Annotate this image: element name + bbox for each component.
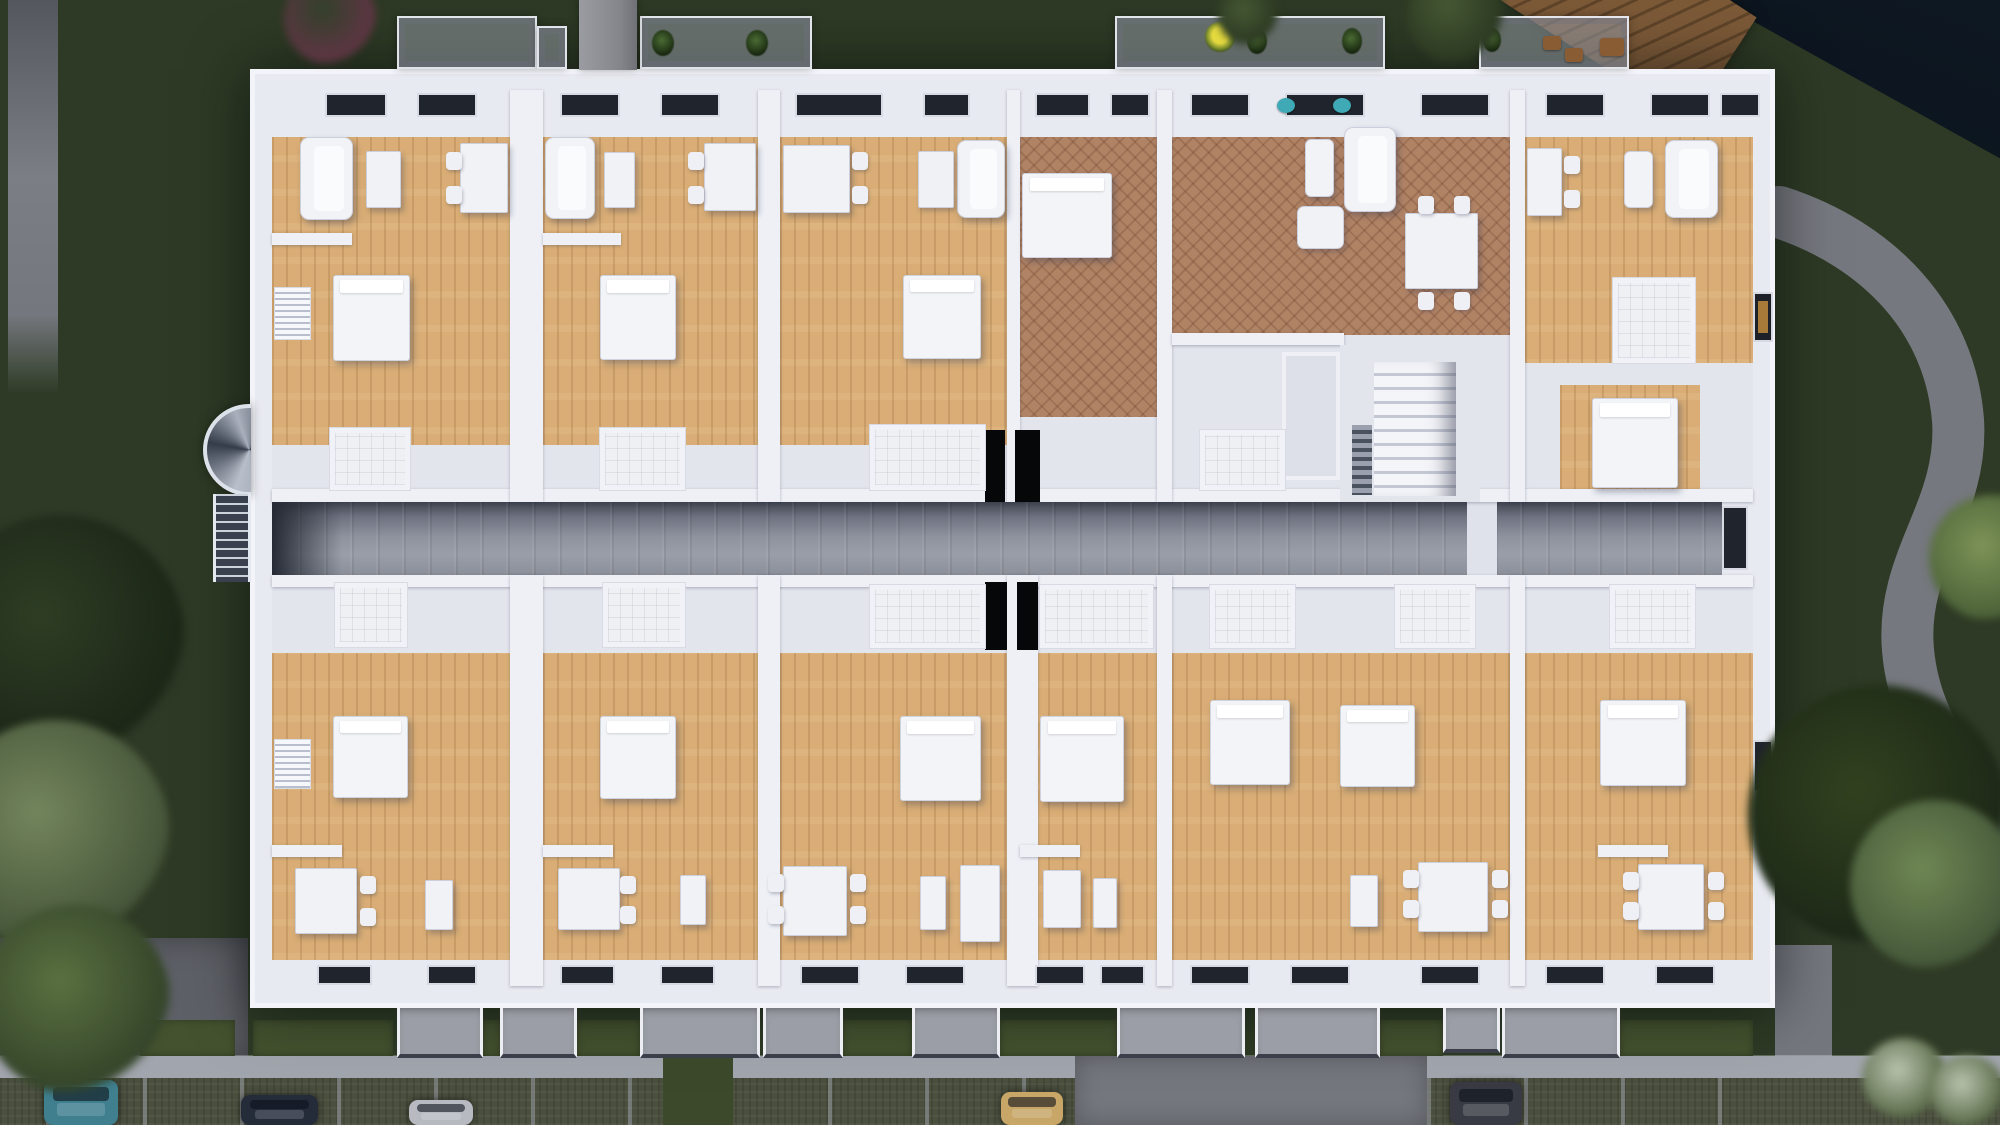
coffee-table (366, 151, 401, 208)
loggia-chair-teal (1333, 98, 1351, 113)
grass-patch (1620, 1020, 1753, 1056)
chair (852, 186, 868, 204)
bathroom (870, 425, 985, 490)
shaft-void (1015, 430, 1040, 502)
dining-table (783, 145, 850, 213)
side-table (1350, 875, 1378, 927)
potted-cypress (1342, 28, 1362, 54)
chair (688, 152, 704, 170)
grass-patch (253, 1020, 393, 1056)
divider-bottom (1157, 575, 1172, 986)
bathroom (1210, 585, 1295, 648)
tv-cabinet (918, 151, 954, 208)
bed (1210, 700, 1290, 785)
chair (1708, 872, 1724, 890)
chair (620, 906, 636, 924)
balcony-bottom (1255, 1008, 1380, 1058)
wall-stub (1598, 845, 1668, 857)
sofa (1665, 140, 1718, 218)
window-top (660, 93, 720, 117)
bush-white-flowers (1930, 1055, 2000, 1125)
path-left-vertical (8, 0, 58, 394)
bathroom (1395, 585, 1475, 648)
window-top (417, 93, 477, 117)
window-top (795, 93, 883, 117)
window-right-lit (1753, 292, 1773, 342)
side-table (425, 880, 453, 930)
dining-table (1527, 148, 1562, 216)
unit-bot-4-floor (1020, 653, 1157, 960)
parking-line (828, 1078, 832, 1125)
stair-landing (1467, 502, 1497, 575)
sidewalk-bottom (0, 1056, 2000, 1080)
window-top (1650, 93, 1710, 117)
divider-bottom (758, 575, 780, 986)
bed (1340, 705, 1415, 787)
bathroom (600, 428, 685, 490)
bathroom (870, 585, 985, 648)
chair (1418, 292, 1434, 310)
window-bottom (1420, 965, 1480, 985)
chair (1492, 870, 1508, 888)
divider-top (758, 90, 780, 502)
armchair (1624, 151, 1653, 208)
side-table (1093, 878, 1117, 928)
parking-line (1718, 1078, 1722, 1125)
parking-line (925, 1078, 929, 1125)
bathroom (1610, 585, 1695, 648)
window-top (325, 93, 387, 117)
sofa (300, 137, 353, 220)
wall-stub (1020, 845, 1080, 857)
shaft-void (985, 582, 1007, 650)
window-bottom (427, 965, 477, 985)
bathroom (1200, 430, 1285, 490)
parking-line (1621, 1078, 1625, 1125)
chair (1564, 156, 1580, 174)
potted-cypress (652, 30, 674, 56)
dining-table (558, 868, 620, 930)
chair (1403, 870, 1419, 888)
car-navy (241, 1095, 318, 1125)
shaft-void (1017, 582, 1038, 650)
chair (1418, 196, 1434, 214)
car-dark (1450, 1082, 1522, 1125)
wall-stub (543, 233, 621, 245)
side-table (960, 865, 1000, 942)
chair (688, 186, 704, 204)
parking-line (1524, 1078, 1528, 1125)
bed (1040, 716, 1124, 802)
apartment-building-top-down-render (0, 0, 2000, 1125)
balcony-bottom (640, 1008, 760, 1058)
bed (600, 716, 676, 799)
parking-line (1427, 1078, 1431, 1125)
sofa (545, 137, 595, 219)
window-bottom (1190, 965, 1250, 985)
car-beige (1001, 1092, 1063, 1125)
chair (360, 908, 376, 926)
radiator (274, 287, 311, 340)
chair (1623, 872, 1639, 890)
chair (446, 186, 462, 204)
bathroom (330, 428, 410, 490)
shaft-void (985, 430, 1005, 502)
grass-patch (1380, 1020, 1443, 1056)
chair (850, 906, 866, 924)
window-top (1420, 93, 1490, 117)
window-top (1545, 93, 1605, 117)
potted-cypress (746, 30, 768, 56)
divider-top (1157, 90, 1172, 502)
window-top (1285, 93, 1365, 117)
window-bottom (1035, 965, 1085, 985)
divider-top (510, 90, 543, 502)
bed (1022, 173, 1112, 258)
grass-patch (1000, 1020, 1117, 1056)
window-bottom (905, 965, 965, 985)
bed (903, 275, 981, 359)
dining-table (460, 143, 508, 213)
chair (446, 152, 462, 170)
window-top (1110, 93, 1150, 117)
chair (768, 874, 784, 892)
ottoman (1297, 206, 1344, 249)
window-bottom (660, 965, 715, 985)
bed (1600, 700, 1686, 786)
dining-table (783, 866, 847, 936)
balcony-bottom (1502, 1008, 1620, 1058)
bathroom (603, 583, 685, 647)
chair (1403, 900, 1419, 918)
concrete-shaft (579, 0, 637, 70)
chair (360, 876, 376, 894)
window-bottom (1290, 965, 1350, 985)
chair (1623, 902, 1639, 920)
balcony-chair-wood (1543, 36, 1561, 50)
wall-stub (272, 233, 352, 245)
dining-table (1418, 862, 1488, 932)
entrance-plaza (1075, 1056, 1427, 1125)
parking-line (628, 1078, 632, 1125)
bed (1592, 398, 1678, 488)
bed (333, 275, 410, 361)
balcony-bottom (1117, 1008, 1245, 1058)
bed (333, 716, 408, 798)
fire-escape-walkway (213, 494, 251, 582)
bathroom (335, 583, 407, 647)
chair (620, 876, 636, 894)
window-bottom (560, 965, 615, 985)
bed (600, 275, 676, 360)
corridor-shadow-left (272, 502, 342, 575)
sofa (1344, 127, 1396, 212)
parking-line (531, 1078, 535, 1125)
window-top (923, 93, 970, 117)
divider-bottom (1510, 575, 1525, 986)
side-table (920, 876, 946, 930)
parking-line (337, 1078, 341, 1125)
chair (1492, 900, 1508, 918)
chair (850, 874, 866, 892)
window-bottom (1545, 965, 1605, 985)
chair (1454, 196, 1470, 214)
side-table (1043, 870, 1081, 928)
wall-stub (1172, 333, 1344, 345)
coffee-table (604, 152, 635, 208)
balcony-top (397, 16, 537, 69)
dining-table (1405, 213, 1478, 289)
balcony-bottom (500, 1008, 577, 1058)
chair (1454, 292, 1470, 310)
bathroom (1613, 278, 1695, 363)
corridor-end-window (1722, 506, 1748, 570)
balcony-chair-wood (1565, 48, 1583, 62)
parking-line (143, 1078, 147, 1125)
window-top (560, 93, 620, 117)
sofa (957, 140, 1005, 218)
window-top (1035, 93, 1090, 117)
grass-patch (483, 1020, 500, 1056)
dining-table (704, 143, 756, 211)
radiator (274, 739, 311, 789)
bed (900, 716, 981, 801)
elevator-shaft (1282, 352, 1340, 480)
window-bottom (1100, 965, 1145, 985)
balcony-bottom (763, 1008, 843, 1058)
dining-table (1638, 864, 1704, 930)
side-table (680, 875, 706, 925)
wall-stub (272, 845, 342, 857)
central-corridor (272, 502, 1722, 575)
balcony-top (537, 26, 567, 69)
divider-top (1510, 90, 1525, 502)
window-top (1720, 93, 1760, 117)
chair (1708, 902, 1724, 920)
path-right-vertical (1775, 945, 1832, 1060)
loggia-chair-teal (1277, 98, 1295, 113)
window-bottom (1655, 965, 1715, 985)
wall-stub (543, 845, 613, 857)
car-silver (409, 1100, 473, 1125)
window-bottom (800, 965, 860, 985)
chair (852, 152, 868, 170)
armchair (1305, 139, 1334, 197)
balcony-bottom (912, 1008, 1000, 1058)
chair (768, 906, 784, 924)
window-bottom (317, 965, 372, 985)
grass-patch (843, 1020, 912, 1056)
staircase (1374, 362, 1456, 496)
balcony-bottom (397, 1008, 483, 1058)
divider-bottom (510, 575, 543, 986)
window-top (1190, 93, 1250, 117)
chair (1564, 190, 1580, 208)
dining-table (295, 868, 357, 934)
staircase-lower-flight (1352, 425, 1372, 495)
parking-grass-divider (663, 1058, 733, 1125)
balcony-bottom (1443, 1008, 1500, 1053)
balcony-table-wood (1600, 38, 1624, 56)
bathroom (1040, 585, 1153, 648)
grass-patch (577, 1020, 640, 1056)
